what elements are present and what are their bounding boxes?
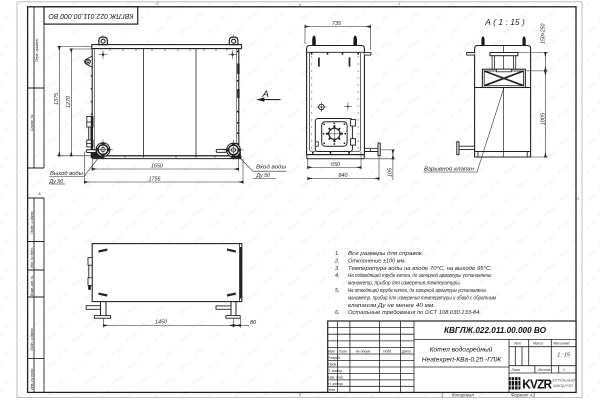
svg-text:Разраб.: Разраб.	[328, 356, 340, 360]
svg-text:манометр, прибор для измерения: манометр, прибор для измерения температу…	[348, 295, 496, 301]
svg-text:Инв. № подл.: Инв. № подл.	[30, 368, 34, 390]
svg-text:6.: 6.	[335, 310, 340, 316]
svg-text:Остальные требования по ОСТ 10: Остальные требования по ОСТ 108.030.133-…	[348, 310, 481, 316]
svg-text:150×250: 150×250	[540, 24, 546, 44]
svg-text:Heatexpert-КВа-0,25 -ГЛЖ: Heatexpert-КВа-0,25 -ГЛЖ	[422, 357, 502, 364]
svg-text:№ докум.: № докум.	[356, 350, 371, 354]
svg-text:Лит.: Лит.	[513, 342, 522, 346]
svg-text:КОТЕЛЬНЫЙ: КОТЕЛЬНЫЙ	[553, 379, 576, 383]
svg-text:Пров.: Пров.	[328, 363, 337, 367]
svg-text:650: 650	[331, 162, 340, 168]
svg-text:клапаном Ду не менее 40 мм.: клапаном Ду не менее 40 мм.	[348, 303, 435, 309]
svg-text:Температура воды на входе 70°С: Температура воды на входе 70°С, на выход…	[348, 266, 492, 272]
svg-text:Т. контр.: Т. контр.	[328, 369, 343, 373]
svg-text:1650: 1650	[151, 164, 163, 170]
svg-text:манометр, прибор для измерения: манометр, прибор для измерения температу…	[348, 281, 461, 287]
svg-text:1755: 1755	[149, 177, 162, 183]
svg-text:Нач. отд.: Нач. отд.	[328, 375, 343, 379]
svg-text:КВГЛЖ.022.011.00.000 ВО: КВГЛЖ.022.011.00.000 ВО	[48, 12, 134, 19]
svg-text:840: 840	[339, 173, 348, 179]
svg-text:Подп. и дата: Подп. и дата	[30, 329, 34, 352]
svg-text:Подп. и дата: Подп. и дата	[30, 212, 34, 235]
svg-text:1005: 1005	[540, 112, 546, 125]
svg-text:Выход воды: Выход воды	[50, 171, 83, 177]
svg-text:2: 2	[155, 1, 159, 6]
svg-text:KVZR: KVZR	[522, 376, 552, 391]
svg-text:Масса: Масса	[533, 342, 543, 346]
svg-text:Котел водогрейный: Котел водогрейный	[430, 346, 493, 354]
svg-text:Взрывной клапан: Взрывной клапан	[424, 166, 474, 173]
svg-text:3.: 3.	[335, 266, 340, 272]
svg-text:Все размеры для справок.: Все размеры для справок.	[348, 251, 424, 257]
svg-text:Отклонение ±100 мм.: Отклонение ±100 мм.	[348, 258, 406, 264]
svg-text:А: А	[576, 196, 580, 201]
svg-text:Копировал: Копировал	[452, 392, 474, 397]
svg-text:2.: 2.	[334, 258, 340, 264]
svg-text:4.: 4.	[335, 273, 340, 279]
svg-text:Подп.: Подп.	[383, 350, 392, 354]
svg-text:1.: 1.	[335, 251, 340, 257]
svg-text:Формат А3: Формат А3	[511, 392, 536, 397]
svg-text:Листов: Листов	[537, 368, 551, 372]
svg-text:А ( 1 : 15 ): А ( 1 : 15 )	[484, 17, 525, 27]
svg-text:Ду 50: Ду 50	[255, 173, 270, 179]
svg-text:Взам. инв. №: Взам. инв. №	[30, 275, 34, 296]
svg-text:Утв.: Утв.	[328, 388, 336, 392]
svg-text:А: А	[37, 191, 41, 196]
svg-text:Лист: Лист	[338, 350, 348, 354]
svg-text:Масштаб: Масштаб	[554, 342, 570, 346]
svg-text:1 : 15: 1 : 15	[557, 353, 570, 359]
svg-text:Вход воды: Вход воды	[256, 165, 286, 171]
svg-text:На подводящей трубе котла, до: На подводящей трубе котла, до запорной а…	[348, 272, 493, 279]
svg-text:КВГЛЖ.022.011.00.000 ВО: КВГЛЖ.022.011.00.000 ВО	[444, 326, 547, 335]
svg-text:Н. контр.: Н. контр.	[328, 382, 343, 386]
svg-text:Инв. № дубл.: Инв. № дубл.	[30, 247, 34, 268]
svg-text:Справ. №: Справ. №	[30, 115, 34, 131]
svg-text:Изм: Изм	[328, 350, 335, 354]
svg-text:ЗАВОД РЭП: ЗАВОД РЭП	[553, 384, 574, 388]
svg-text:5.: 5.	[335, 288, 340, 294]
svg-text:735: 735	[332, 21, 342, 27]
svg-text:1: 1	[563, 368, 565, 372]
svg-text:Лист: Лист	[511, 368, 521, 372]
svg-text:Перв. примен.: Перв. примен.	[35, 38, 39, 62]
svg-text:На отводящей трубе котла, до з: На отводящей трубе котла, до запорной ар…	[348, 287, 487, 294]
svg-text:1375: 1375	[54, 92, 60, 105]
svg-text:Дата: Дата	[401, 350, 411, 354]
svg-text:80: 80	[250, 320, 256, 326]
svg-text:1450: 1450	[155, 319, 167, 325]
svg-text:105: 105	[388, 167, 394, 177]
svg-text:1270: 1270	[66, 96, 72, 108]
